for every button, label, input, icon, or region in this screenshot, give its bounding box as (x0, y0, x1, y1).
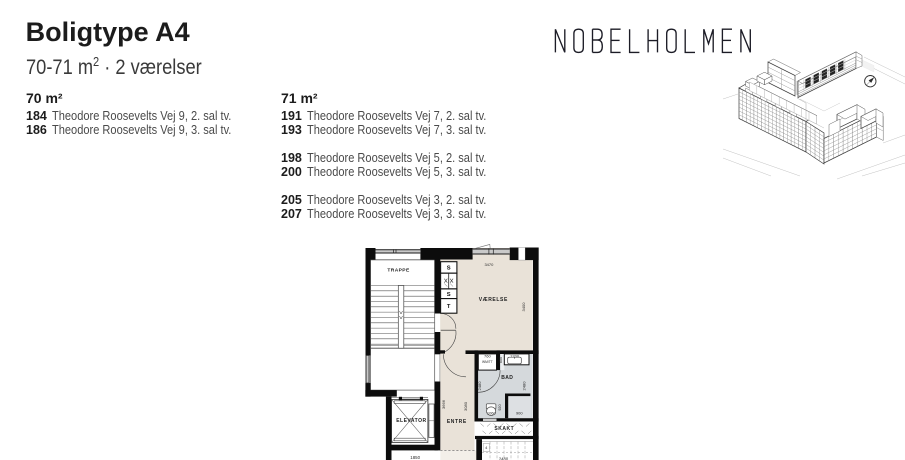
svg-text:3470: 3470 (484, 262, 494, 267)
svg-text:2480: 2480 (477, 381, 482, 391)
svg-text:2480: 2480 (521, 381, 526, 391)
svg-text:S: S (447, 292, 451, 298)
svg-text:TRAPPE: TRAPPE (387, 268, 410, 274)
svg-text:WM/TT: WM/TT (482, 360, 493, 364)
svg-text:1060: 1060 (487, 411, 497, 416)
svg-text:S: S (447, 266, 451, 272)
svg-text:VÆRELSE: VÆRELSE (479, 297, 508, 303)
svg-text:T: T (447, 304, 451, 310)
svg-text:3400: 3400 (521, 302, 526, 312)
svg-text:3080: 3080 (463, 401, 468, 411)
svg-text:920: 920 (498, 404, 502, 410)
svg-text:BAD: BAD (501, 375, 513, 381)
svg-text:3666: 3666 (441, 399, 446, 409)
svg-text:900: 900 (516, 411, 523, 416)
svg-text:ELEVATOR: ELEVATOR (396, 418, 426, 424)
svg-text:ENTRE: ENTRE (447, 419, 467, 425)
svg-text:650: 650 (499, 357, 503, 363)
svg-text:SKAKT: SKAKT (494, 426, 514, 432)
svg-text:1850: 1850 (410, 455, 420, 460)
svg-text:2480: 2480 (499, 457, 509, 460)
svg-text:760: 760 (484, 354, 491, 359)
